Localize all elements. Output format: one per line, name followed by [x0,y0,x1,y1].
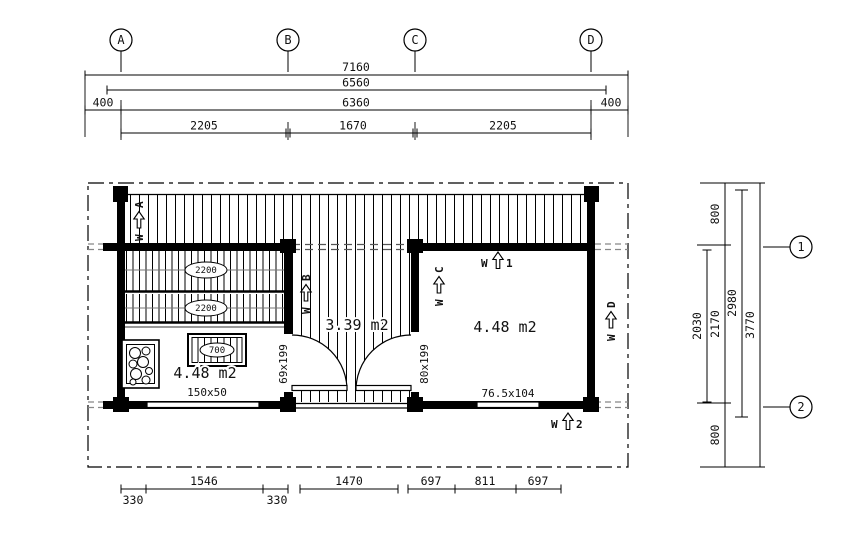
dim-span-ab: 2205 [190,119,218,133]
post [113,186,128,202]
wall-tag-prefix: W [605,334,618,341]
post [280,397,296,412]
stove-icon [122,340,159,388]
wall-tag-letter: C [433,266,446,273]
dim-811: 811 [475,474,496,488]
wall-tag-letter: D [605,301,618,308]
wall-tag-number: 1 [506,257,513,270]
door-left-size-label: 69x199 [277,344,290,384]
wall-tag-prefix: W [551,418,558,431]
dim-800-top: 800 [708,204,722,225]
dim-697-right: 697 [528,474,549,488]
wall-tag-prefix: W [433,299,446,306]
up-arrow-icon [434,277,444,294]
wall-tag-W1: W 1 [481,252,513,270]
dim-inner-top: 6360 [342,96,370,110]
dim-330-left: 330 [123,493,144,507]
sauna-window [147,402,259,408]
wall-tag-prefix: W [481,257,488,270]
cabin-area-label: 4.48 m2 [473,318,536,336]
post [407,397,423,412]
wall-tag-WD: W D [605,301,618,341]
grid-label-2: 2 [797,400,804,414]
cabin-window [477,402,539,408]
wall-tag-WC: W C [433,266,446,306]
dim-800-bottom: 800 [708,425,722,446]
dim-span-cd: 2205 [489,119,517,133]
dim-3770: 3770 [743,311,757,339]
wall-east [587,188,595,409]
grid-label-D: D [587,33,594,47]
dim-right-offset: 400 [601,96,622,110]
dim-span-bc: 1670 [339,119,367,133]
wall-top-right [411,243,595,251]
grid-label-A: A [117,33,125,47]
bench-middle-length: 2200 [195,304,217,314]
grid-rows [790,236,812,418]
dim-2980: 2980 [725,289,739,317]
sauna-window-label: 150x50 [187,386,227,399]
sauna-area-label: 4.48 m2 [173,364,236,382]
up-arrow-icon [493,252,503,269]
cabin-room: 4.48 m2 76.5x104 [473,318,539,408]
post [280,239,296,253]
cabin-window-label: 76.5x104 [482,387,535,400]
grid-label-C: C [411,33,418,47]
wall-top-left [103,243,292,251]
dim-left-offset: 400 [93,96,114,110]
wall-tag-number: 2 [576,418,583,431]
bench-upper-length: 2200 [195,266,217,276]
dim-second-top: 6560 [342,76,370,90]
dim-1546: 1546 [190,474,218,488]
post [113,397,129,412]
drawing-sheet: A B C D 7160 6560 400 6360 400 2205 1670… [0,0,857,550]
grid-label-B: B [284,33,291,47]
grid-label-1: 1 [797,240,804,254]
floor-plan-drawing: A B C D 7160 6560 400 6360 400 2205 1670… [0,0,857,550]
wall-tag-letter: A [133,201,146,208]
sauna-room: 2200 2200 700 4.48 m2 150x50 [118,251,291,408]
wall-tag-letter: B [300,274,313,281]
door-right-size-label: 80x199 [418,344,431,384]
wall-tag-W2: W 2 [551,413,583,431]
dim-1470: 1470 [335,474,363,488]
dim-697-left: 697 [421,474,442,488]
wall-tag-prefix: W [300,307,313,314]
dim-2170: 2170 [708,310,722,338]
post [584,186,599,202]
post [407,239,423,253]
dim-overall-top: 7160 [342,60,370,74]
up-arrow-icon [606,312,616,329]
terrace-area-label: 3.39 m2 [325,316,388,334]
wall-tag-prefix: W [133,234,146,241]
dim-2030: 2030 [690,312,704,340]
post [583,397,599,412]
bench-small: 700 [188,334,246,366]
bench-small-length: 700 [209,346,225,356]
up-arrow-icon [563,413,573,430]
dim-330-right: 330 [267,493,288,507]
